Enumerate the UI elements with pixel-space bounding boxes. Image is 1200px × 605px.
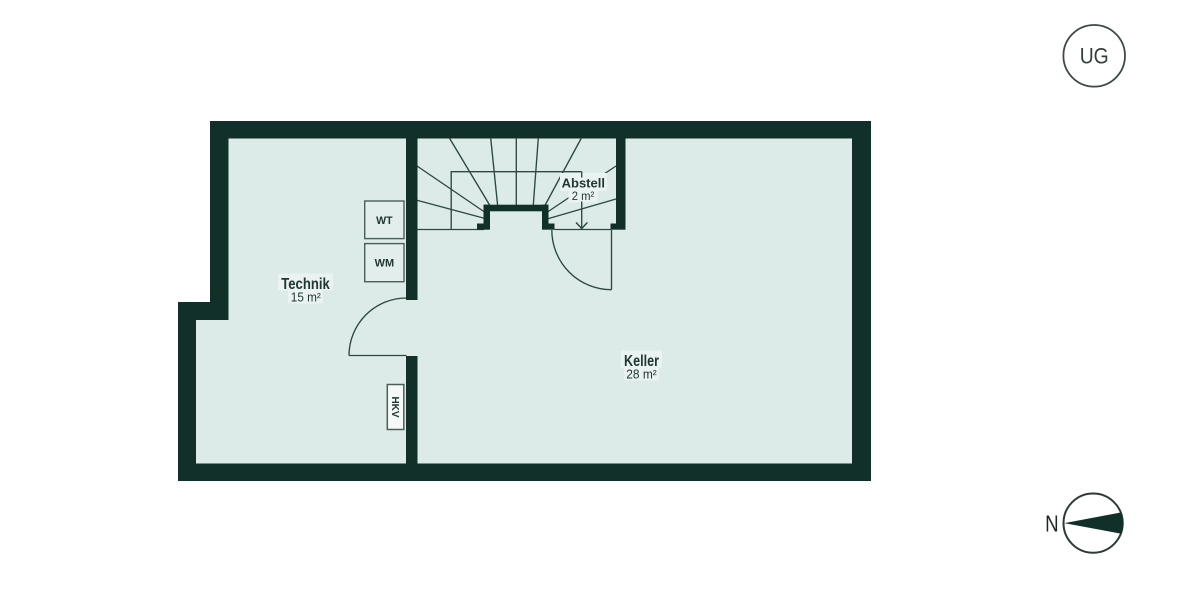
svg-text:2 m²: 2 m² (572, 189, 595, 203)
svg-text:15 m²: 15 m² (291, 290, 322, 305)
svg-text:N: N (1045, 511, 1059, 537)
svg-text:WM: WM (375, 258, 395, 270)
svg-text:UG: UG (1080, 44, 1109, 69)
svg-text:28 m²: 28 m² (626, 367, 657, 382)
svg-text:WT: WT (376, 215, 393, 227)
svg-text:HKV: HKV (389, 397, 400, 418)
